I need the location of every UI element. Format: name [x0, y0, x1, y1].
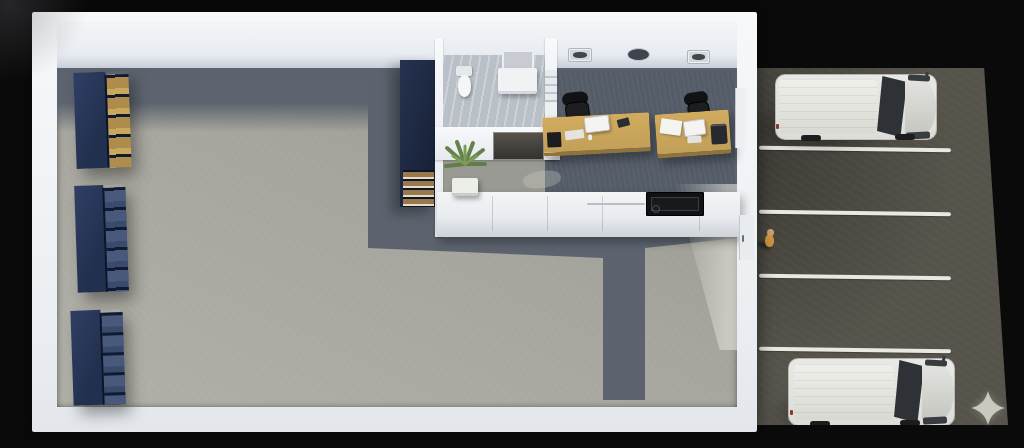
drawer-handle — [587, 203, 645, 205]
potted-plant — [443, 138, 487, 194]
monitor — [584, 114, 611, 133]
cabinet-shelf-items — [403, 170, 434, 207]
van-roof — [779, 79, 877, 134]
vent-grill — [573, 52, 587, 59]
panel-mark — [652, 205, 660, 213]
storage-rack — [73, 71, 129, 169]
mouse — [588, 134, 592, 140]
counter-dark-panel — [646, 192, 704, 216]
reception-counter — [437, 192, 740, 237]
sparkle-icon — [971, 391, 1005, 425]
van-hood — [905, 79, 936, 135]
keyboard — [687, 135, 701, 143]
rack-shelves — [104, 74, 131, 168]
counter-seam — [492, 196, 493, 231]
van-wheel — [801, 135, 821, 141]
vent-grill — [692, 54, 705, 61]
counter-seam — [602, 196, 603, 231]
person — [762, 228, 778, 252]
van-side-window — [923, 416, 947, 424]
air-vent — [568, 48, 592, 62]
printer — [710, 124, 727, 145]
wall-shelf — [545, 70, 557, 103]
building — [32, 12, 757, 432]
van-bottom — [788, 358, 955, 426]
van-wheel — [895, 134, 915, 140]
wall-cabinet — [400, 60, 437, 207]
counter-seam — [547, 196, 548, 231]
keyboard — [565, 129, 585, 140]
north-wall-inner-face — [57, 22, 737, 68]
wall-clock — [627, 48, 650, 61]
render-canvas — [0, 0, 1024, 448]
van-hood — [922, 364, 954, 420]
desktop-pc — [547, 132, 562, 148]
toilet — [458, 75, 471, 97]
monitor — [683, 118, 707, 137]
rack-shelves — [99, 312, 125, 405]
planter — [452, 178, 478, 196]
door-handle — [742, 235, 744, 242]
entrance-door — [739, 215, 754, 260]
vanity-sink — [498, 68, 537, 94]
office-east-door — [735, 88, 746, 148]
desk — [542, 112, 651, 157]
desk-phone — [617, 117, 631, 128]
van-top — [775, 74, 937, 140]
rack-shelves — [103, 187, 129, 292]
van-taillight — [790, 410, 793, 415]
person-head — [767, 229, 774, 236]
desk — [655, 109, 732, 158]
van-taillight — [776, 124, 779, 129]
storage-rack — [70, 309, 123, 406]
parking-lot — [757, 68, 1008, 425]
storage-rack — [74, 184, 127, 293]
parking-line — [759, 274, 951, 281]
rack-top — [70, 310, 103, 406]
office-door — [493, 132, 544, 160]
air-vent — [687, 50, 710, 64]
van-wheel — [810, 421, 830, 427]
parking-line — [759, 347, 951, 354]
rack-top — [73, 72, 108, 169]
van-wheel — [900, 420, 920, 426]
plant-leaves — [443, 138, 487, 182]
parking-line — [759, 210, 951, 217]
van-roof — [794, 364, 894, 420]
papers — [660, 118, 683, 136]
